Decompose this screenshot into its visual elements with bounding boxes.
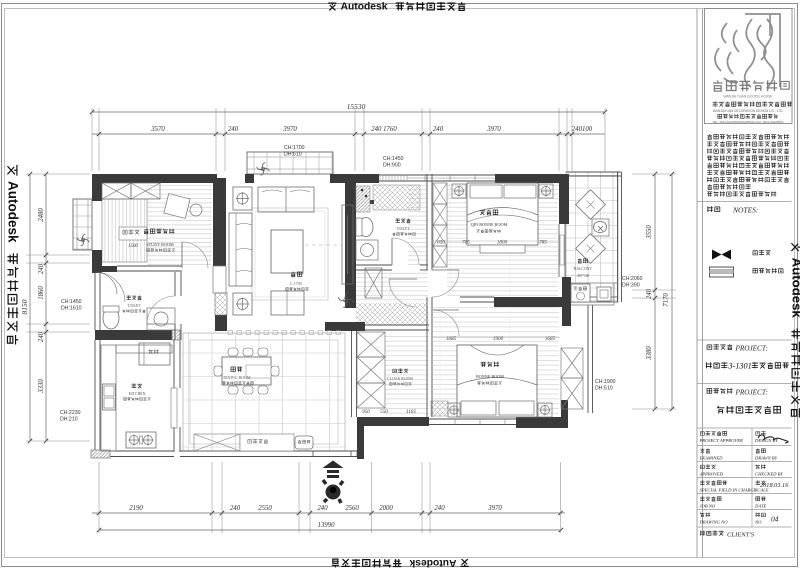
svg-text:CLOAK ROOM: CLOAK ROOM [387,377,413,381]
svg-text:240: 240 [230,505,241,512]
svg-text:240: 240 [38,263,45,274]
svg-text:NOTES:: NOTES: [732,206,758,215]
svg-text:950: 950 [362,409,370,415]
svg-text:3330: 3330 [38,379,45,394]
svg-text:240: 240 [433,126,444,133]
svg-text:3970: 3970 [282,126,297,133]
svg-text:SPECIAL FIELD IN CHARGE: SPECIAL FIELD IN CHARGE [700,488,757,493]
svg-text:BALCONY: BALCONY [574,267,593,271]
svg-text:3570: 3570 [150,126,165,133]
svg-text:DRAWING NO: DRAWING NO [699,520,729,525]
svg-text:STUDY ROOM: STUDY ROOM [146,242,174,247]
svg-text:DH:510: DH:510 [595,386,613,392]
svg-text:04: 04 [771,515,779,524]
svg-text:DH:1610: DH:1610 [61,306,82,312]
svg-text:300*300: 300*300 [577,274,590,278]
svg-text:CH:1700: CH:1700 [284,145,305,151]
svg-text:TOILET: TOILET [127,304,141,308]
svg-text:7170: 7170 [663,293,670,307]
svg-text:3550: 3550 [646,225,653,240]
svg-text:1685: 1685 [446,336,457,342]
svg-text:1685: 1685 [545,336,556,342]
svg-text:15530: 15530 [347,102,366,111]
svg-text:TEL: 0511-84425544/84435544 F: TEL: 0511-84425544/84435544 FAX: 0511-84… [712,120,783,124]
svg-text:DH:610: DH:610 [284,152,302,158]
svg-text:1900: 1900 [493,336,504,342]
svg-text:CH:1450: CH:1450 [61,299,82,305]
svg-text:Autodesk: Autodesk [341,2,388,13]
svg-text:PROJECT:: PROJECT: [735,345,768,353]
svg-text:BONNE ROOM: BONNE ROOM [476,374,504,379]
svg-text:785: 785 [462,240,470,246]
svg-text:WANJIA YUAN GOODS HOUSE: WANJIA YUAN GOODS HOUSE [723,95,773,99]
svg-text:PROJECT:: PROJECT: [735,389,768,397]
svg-text:3380: 3380 [646,346,653,361]
svg-text:WANJIAYUAN DECORATION DESIGN C: WANJIAYUAN DECORATION DESIGN CO., LTD. [713,109,784,113]
svg-text:240: 240 [228,126,239,133]
svg-text:2480: 2480 [38,208,45,222]
svg-text:DRAWN BY: DRAWN BY [754,456,778,461]
svg-text:L:1700: L:1700 [290,281,302,286]
svg-text:2560: 2560 [345,505,359,512]
svg-text:DINING ROOM: DINING ROOM [223,375,251,380]
svg-text:2550: 2550 [258,505,272,512]
svg-text:CHECKED BY: CHECKED BY [755,472,783,477]
svg-text:APPROVED: APPROVED [699,472,724,477]
svg-text:1500: 1500 [128,244,138,249]
svg-text:240: 240 [434,505,445,512]
svg-text:8150: 8150 [20,299,29,314]
svg-text:13990: 13990 [318,522,336,529]
svg-text:Autodesk: Autodesk [6,181,21,243]
svg-text:1105: 1105 [406,409,416,415]
svg-text:1860: 1860 [38,286,45,300]
svg-text:DH:390: DH:390 [622,283,640,289]
svg-text:KITCHEN: KITCHEN [129,392,146,396]
svg-text:550: 550 [380,409,388,415]
svg-text:1800: 1800 [497,240,508,246]
svg-text:DH:210: DH:210 [60,417,78,423]
svg-text:CH:1450: CH:1450 [383,156,404,162]
svg-text:3970: 3970 [487,505,502,512]
svg-text:NO.: NO. [754,520,763,525]
svg-text:CH:2060: CH:2060 [622,276,643,282]
svg-text:DATE: DATE [754,504,767,509]
svg-text:TOILET: TOILET [396,227,410,231]
svg-text:240: 240 [317,505,328,512]
svg-text:240 1760: 240 1760 [371,126,397,133]
svg-text:650: 650 [437,240,445,246]
svg-text:JOB NO: JOB NO [700,504,716,509]
svg-text:EXAMINED: EXAMINED [699,456,724,461]
svg-text:240: 240 [38,331,45,342]
svg-text:785: 785 [539,240,547,246]
svg-text:CH:1900: CH:1900 [595,379,616,385]
svg-text:3970: 3970 [486,126,501,133]
svg-text:2190: 2190 [129,505,143,512]
svg-text:2018.03.16: 2018.03.16 [760,482,789,489]
svg-text:QIN BONNE ROOM: QIN BONNE ROOM [471,222,508,227]
svg-text:3-1301: 3-1301 [728,362,752,371]
svg-text:2000: 2000 [379,505,393,512]
svg-text:DH:900: DH:900 [383,163,401,169]
svg-text:CH:2230: CH:2230 [60,410,81,416]
svg-text:Autodesk: Autodesk [790,258,800,319]
svg-text:Autodesk: Autodesk [409,557,456,568]
svg-text:PROJECT APPROVER: PROJECT APPROVER [699,438,744,443]
svg-text:240100: 240100 [572,126,593,133]
svg-text:CLIENT'S: CLIENT'S [727,532,755,539]
